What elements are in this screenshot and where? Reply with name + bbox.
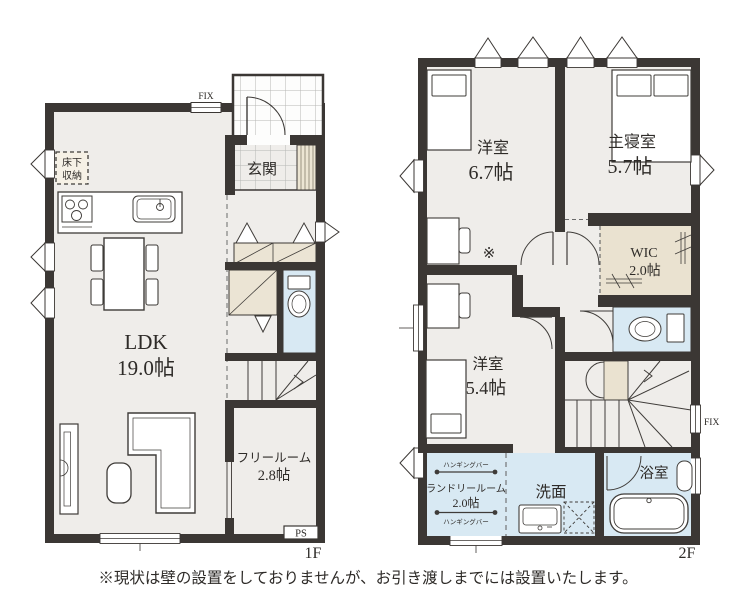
kitchen-counter xyxy=(58,192,182,233)
fix-window-1f xyxy=(191,103,221,113)
wic-size: 2.0帖 xyxy=(629,263,661,279)
pipe-space: PS xyxy=(284,526,318,540)
bathroom-label: 浴室 xyxy=(640,465,669,482)
laundry-size: 2.0帖 xyxy=(452,495,479,510)
washroom-label: 洗面 xyxy=(535,483,566,501)
genkan-label: 玄関 xyxy=(247,161,277,178)
wic-label: WIC xyxy=(630,246,657,261)
bath-counter-icon xyxy=(677,461,692,491)
bedroom67-size: 6.7帖 xyxy=(469,161,514,184)
toilet-room-1f xyxy=(283,270,316,353)
walk-in-closet: WIC 2.0帖 xyxy=(600,226,691,295)
footnote: ※現状は壁の設置をしておりませんが、お引き渡しまでには設置いたします。 xyxy=(98,569,637,587)
hall-closet xyxy=(234,243,316,264)
floor-label-1f: 1F xyxy=(305,545,322,562)
window-bottom-2f xyxy=(450,536,502,554)
washbasin-icon xyxy=(519,505,561,533)
bedroom67-label: 洋室 xyxy=(477,139,509,157)
hanging-bar-label-top: ハンギングバー xyxy=(443,460,489,469)
bedroom54-label: 洋室 xyxy=(472,355,503,373)
floor-1f: FIX 玄関 xyxy=(31,75,339,562)
tv-board xyxy=(60,424,78,514)
underfloor-storage: 床下 収納 xyxy=(56,152,88,184)
single-bed-67 xyxy=(427,70,471,150)
freeroom-label: フリールーム xyxy=(237,451,312,465)
single-bed-54 xyxy=(426,360,466,438)
ldk-size: 19.0帖 xyxy=(117,356,175,380)
main-bedroom-size: 5.7帖 xyxy=(608,155,653,178)
ottoman xyxy=(107,463,131,503)
fix-label-1f: FIX xyxy=(198,92,213,102)
svg-text:床下: 床下 xyxy=(62,156,82,169)
casement-window-icon-right-1f xyxy=(316,222,340,242)
floor-2f: FIX xyxy=(399,37,719,562)
hanging-bar-label-bottom: ハンギングバー xyxy=(443,517,489,526)
floor-plan-drawing: FIX 玄関 xyxy=(0,0,736,600)
window-bottom-1f xyxy=(100,534,180,552)
main-bedroom-label: 主寝室 xyxy=(608,132,656,151)
bedroom54-size: 5.4帖 xyxy=(466,378,507,398)
bathroom: 浴室 xyxy=(604,453,692,536)
sink-icon xyxy=(133,196,175,222)
laundry-label: ランドリールーム xyxy=(426,483,506,495)
floor-label-2f: 2F xyxy=(679,545,696,562)
svg-text:収納: 収納 xyxy=(62,169,82,182)
ps-label: PS xyxy=(295,529,307,540)
shoe-cabinet xyxy=(297,145,316,190)
bathtub-icon xyxy=(610,494,688,533)
toilet-icon-1f xyxy=(288,276,310,317)
wall-note-mark: ※ xyxy=(483,246,496,262)
fix-label-2f: FIX xyxy=(704,418,719,428)
freeroom-size: 2.8帖 xyxy=(258,467,291,484)
floor-plan-page: FIX 玄関 xyxy=(0,0,736,600)
ldk-label: LDK xyxy=(124,330,167,354)
stove-icon xyxy=(62,196,92,227)
